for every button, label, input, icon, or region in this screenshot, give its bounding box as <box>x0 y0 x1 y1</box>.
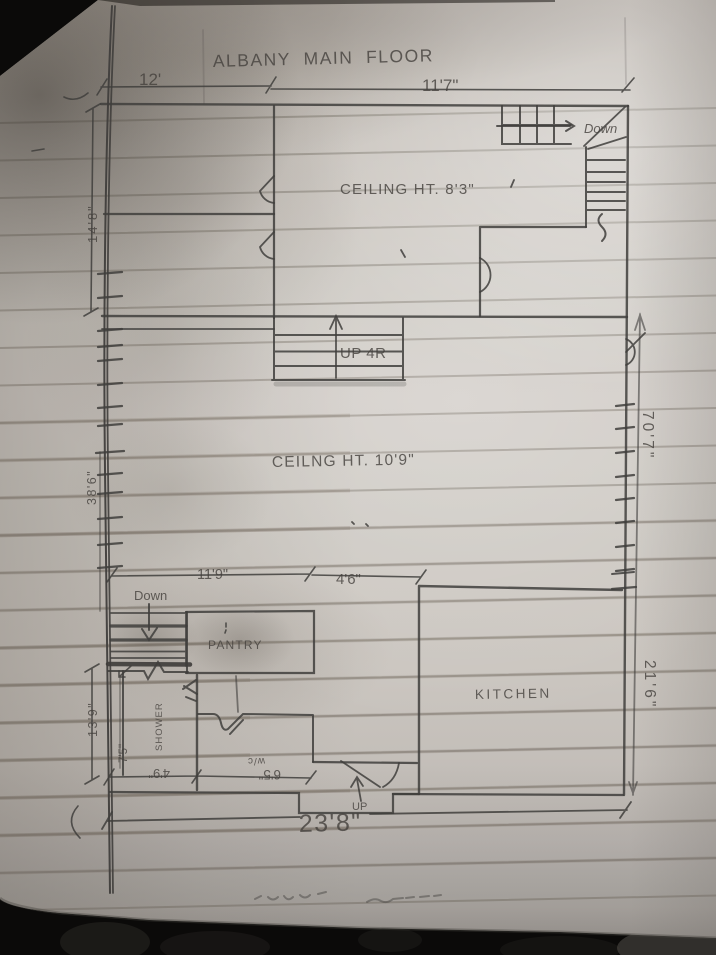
svg-text:Down: Down <box>584 121 617 136</box>
svg-text:4'9": 4'9" <box>148 766 170 781</box>
svg-text:11'7": 11'7" <box>422 76 458 95</box>
svg-text:70'7": 70'7" <box>639 411 656 460</box>
svg-text:CEILING HT. 8'3": CEILING HT. 8'3" <box>340 181 475 198</box>
svg-text:6'5": 6'5" <box>258 767 281 782</box>
svg-text:PANTRY: PANTRY <box>208 638 263 652</box>
svg-text:11'9": 11'9" <box>197 567 228 583</box>
svg-text:12': 12' <box>139 70 161 89</box>
svg-text:KITCHEN: KITCHEN <box>475 686 552 702</box>
svg-text:21'6": 21'6" <box>641 660 658 709</box>
svg-text:Down: Down <box>134 588 167 603</box>
svg-text:7'5": 7'5" <box>118 744 130 763</box>
svg-text:CEILNG HT. 10'9": CEILNG HT. 10'9" <box>272 452 415 471</box>
svg-text:4'6": 4'6" <box>336 571 361 588</box>
svg-text:UP 4R: UP 4R <box>340 345 386 362</box>
svg-text:14'8": 14'8" <box>85 204 100 243</box>
svg-text:SHOWER: SHOWER <box>154 702 165 751</box>
svg-text:38'6": 38'6" <box>85 470 99 505</box>
svg-text:13'9": 13'9" <box>86 702 100 737</box>
svg-text:w/c: w/c <box>247 755 266 766</box>
svg-text:23'8": 23'8" <box>298 808 362 838</box>
